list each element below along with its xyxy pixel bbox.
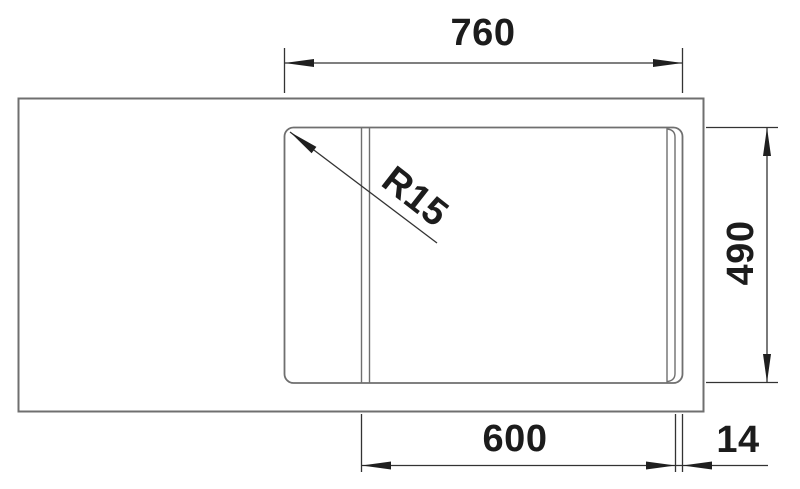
dimension-label-bottom-edge-offset: 14 (716, 421, 759, 459)
drawing-linework (0, 0, 800, 489)
bowl-right-rim-outer-line (668, 129, 676, 382)
dim-600-arrow-left (362, 462, 392, 470)
radius-leader-arrow (290, 132, 316, 153)
dimension-label-top-width: 760 (451, 14, 516, 52)
dim-600-arrow-right (646, 462, 676, 470)
dim-490-arrow-bottom (763, 354, 771, 383)
dimension-label-bottom-inner-width: 600 (483, 420, 548, 458)
dim-760-arrow-left (285, 59, 315, 67)
dimension-label-right-height: 490 (722, 221, 760, 286)
dim-760-arrow-right (653, 59, 683, 67)
recess-outline (285, 128, 683, 384)
technical-drawing-canvas: 760 490 600 14 R15 (0, 0, 800, 489)
dim-14-arrow-right-outside (683, 462, 713, 470)
dim-490-arrow-top (763, 128, 771, 157)
